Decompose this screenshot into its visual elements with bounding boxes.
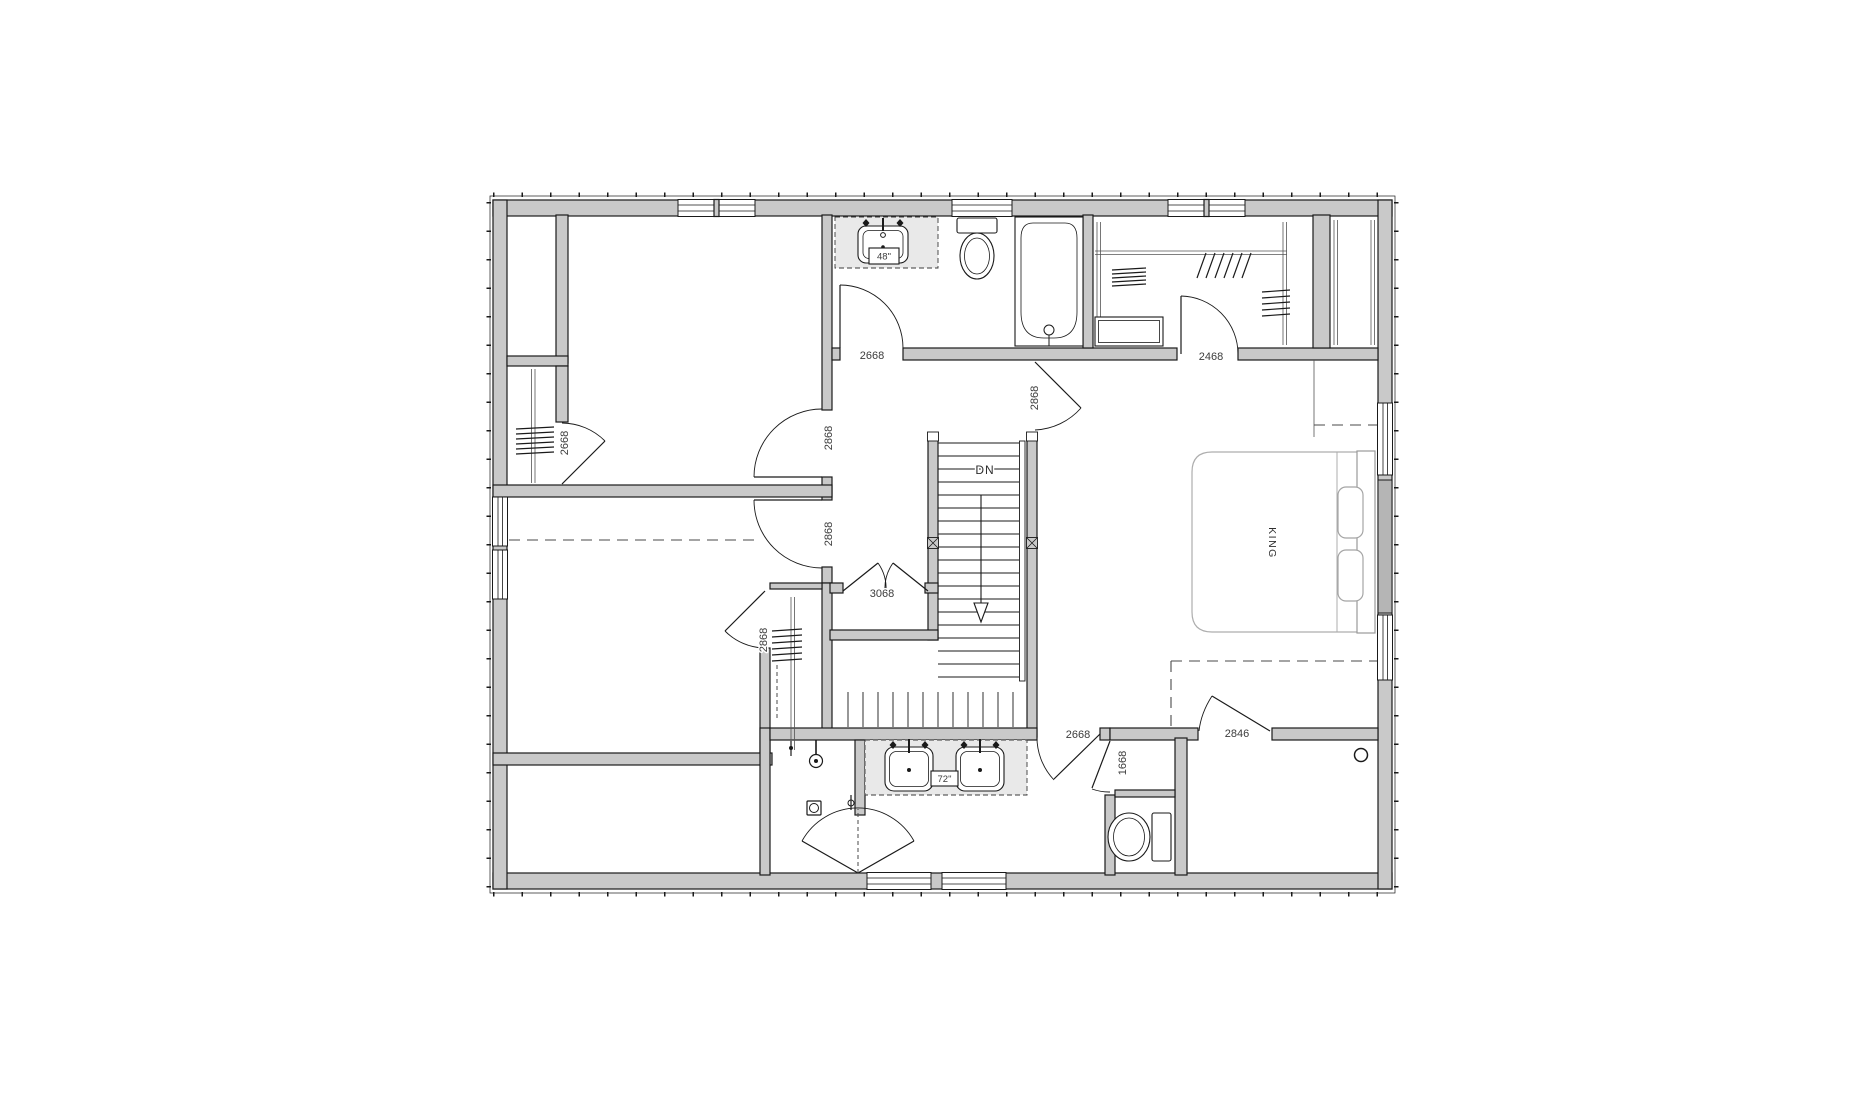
master-bedroom: KING [1192,451,1375,633]
vanity-48-label: 48" [877,252,891,263]
water-closet-door-label: 1668 [1117,751,1129,775]
walk-in-closet-door-label: 2468 [1199,351,1223,363]
master-bathroom-door-label: 2668 [1066,729,1090,741]
window-right-master-b [1378,615,1393,680]
floor-plan-page: DN [0,0,1861,1104]
headboard-wall [1378,480,1392,613]
hall-bathroom-door-label: 2668 [860,350,884,362]
outer-wall-top [493,200,1392,216]
bedroom2-closet-door-label: 2668 [559,431,571,455]
bedroom2-door-label: 2868 [823,426,835,450]
vanity-72-sink-right [956,739,1004,791]
window-top-bedroom2 [678,200,755,217]
bedroom-divider-wall [493,485,832,497]
stairs-down-label: DN [975,463,994,477]
bedroom3-door-label: 2868 [823,522,835,546]
king-bed-label: KING [1266,527,1278,559]
stair-handrail [1020,441,1026,681]
window-left-bedroom3-b [493,550,508,599]
window-bottom-masterbath-a [867,873,931,890]
toilet [957,218,997,279]
window-right-master-a [1378,403,1393,475]
window-left-bedroom3-a [493,497,508,546]
water-closet [1108,813,1171,861]
floor-plan-canvas: DN [0,0,1861,1104]
pillow [1338,550,1363,601]
window-top-closet [1168,200,1245,217]
hall-closet-door-label: 3068 [870,588,894,600]
window-top-bathroom [952,200,1012,217]
vanity-72-sink-left [885,739,933,791]
bathtub [1015,217,1083,346]
wc-toilet [1108,813,1171,861]
bedroom3-closet-door-label: 2868 [758,628,770,652]
pillow [1338,487,1363,538]
window-bottom-masterbath-b [942,873,1006,890]
vanity-72-label: 72" [938,774,952,785]
bed-headboard [1357,451,1375,633]
master-bedroom-door-label: 2868 [1029,386,1041,410]
master-closet-door-label: 2846 [1225,728,1249,740]
closet-bench [1095,317,1163,346]
